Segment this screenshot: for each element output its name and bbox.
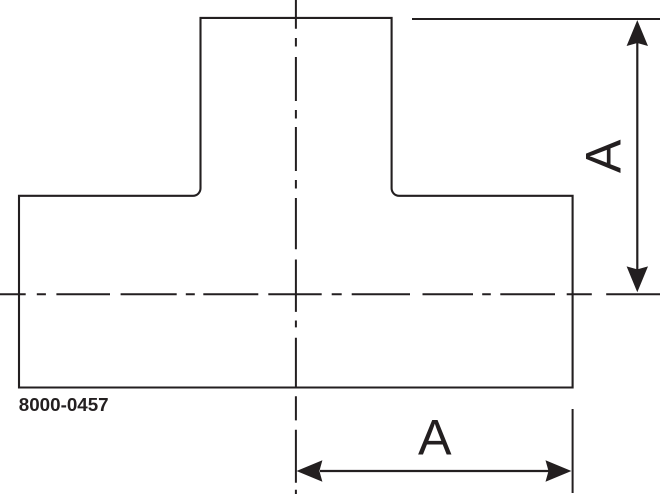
svg-text:8000-0457: 8000-0457 — [19, 394, 109, 415]
svg-text:A: A — [418, 408, 452, 465]
svg-text:A: A — [574, 139, 631, 173]
